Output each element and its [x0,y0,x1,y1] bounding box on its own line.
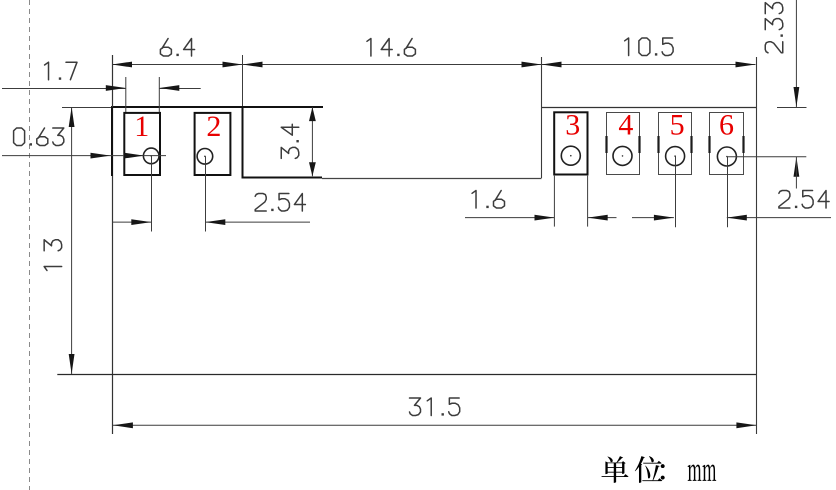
svg-text:5: 5 [670,109,685,142]
svg-text:4: 4 [618,109,633,142]
svg-text:3: 3 [565,109,580,142]
svg-text:1: 1 [134,110,149,143]
svg-text:2: 2 [206,110,221,143]
svg-text:6: 6 [719,109,734,142]
